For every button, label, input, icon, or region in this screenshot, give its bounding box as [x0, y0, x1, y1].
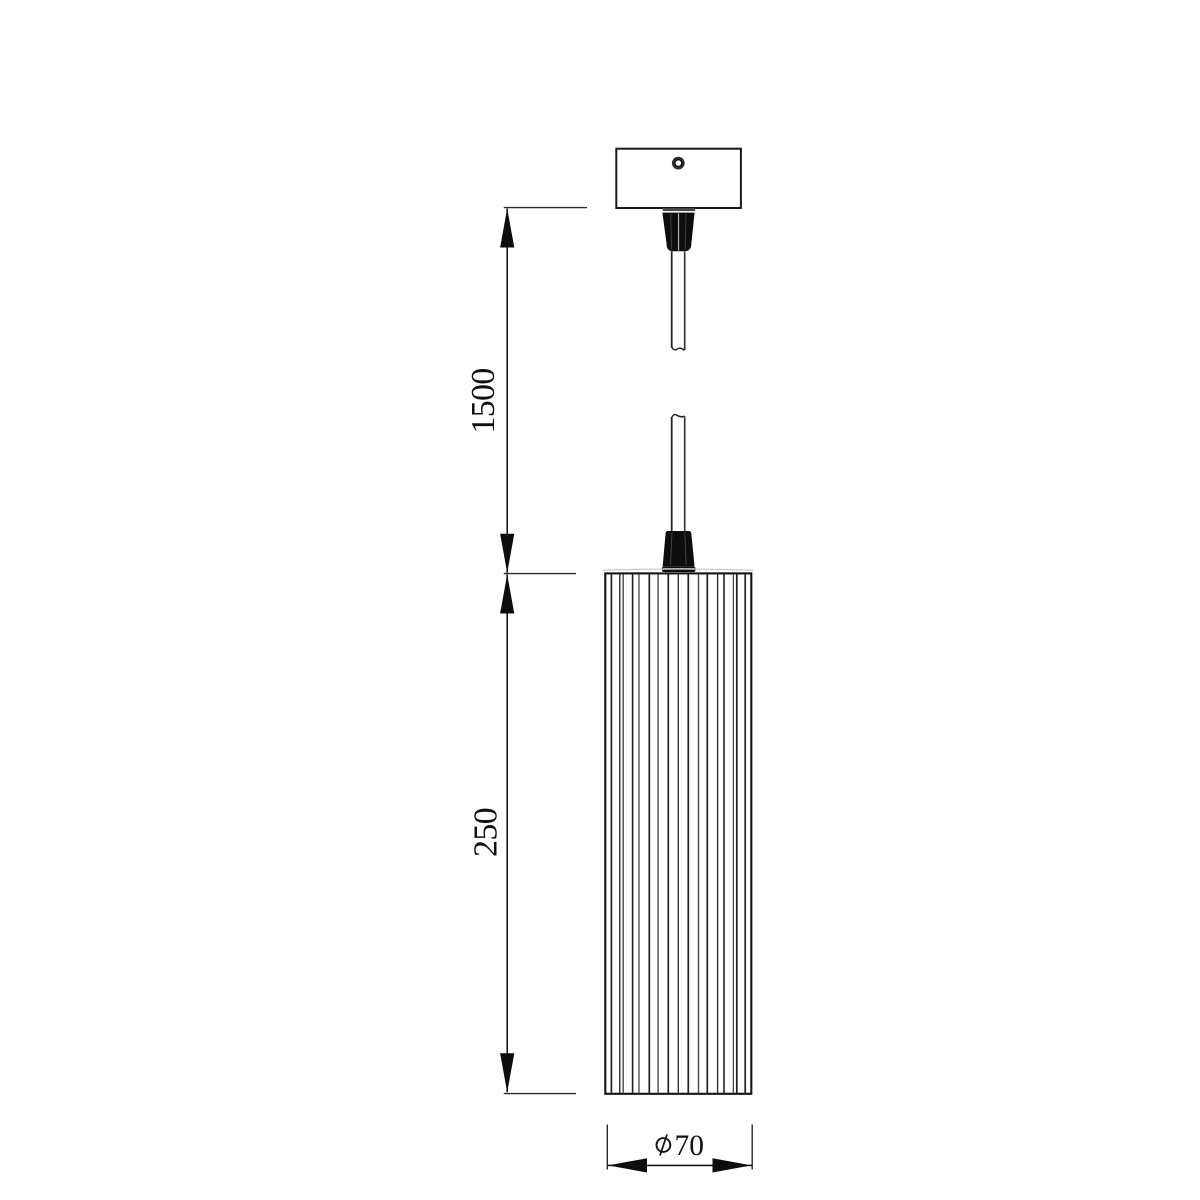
svg-text:1500: 1500	[465, 368, 502, 433]
svg-text:70: 70	[675, 1130, 705, 1162]
svg-text:250: 250	[468, 808, 505, 857]
